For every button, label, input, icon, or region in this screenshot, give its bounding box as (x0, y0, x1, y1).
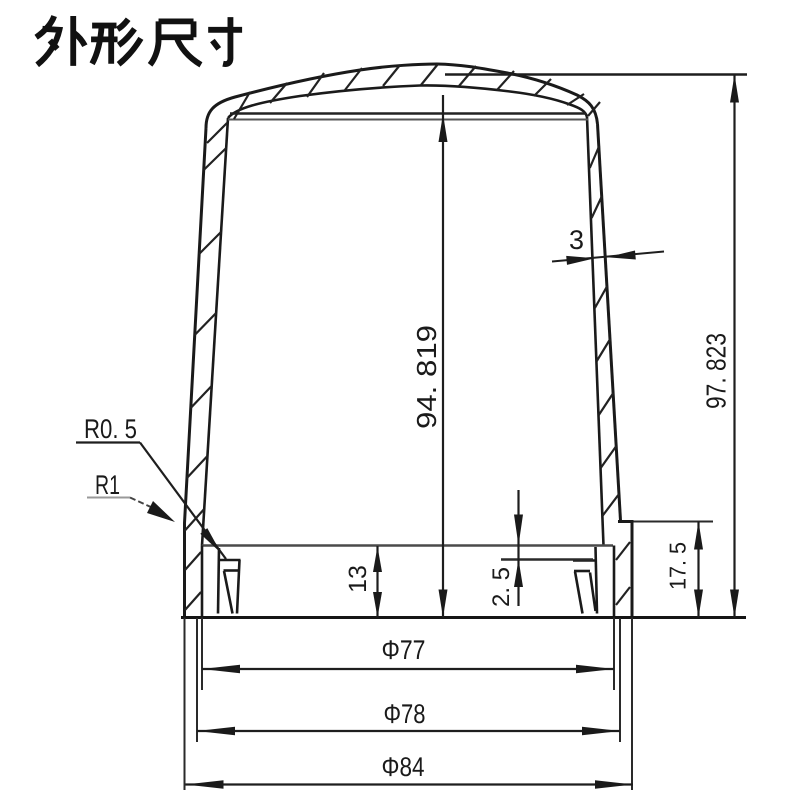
svg-text:2. 5: 2. 5 (488, 567, 515, 607)
svg-text:3: 3 (569, 225, 584, 255)
svg-text:Φ77: Φ77 (382, 635, 426, 665)
svg-text:Φ78: Φ78 (384, 699, 426, 729)
svg-text:Φ84: Φ84 (382, 752, 425, 782)
svg-text:97. 823: 97. 823 (701, 333, 732, 409)
svg-text:17. 5: 17. 5 (665, 542, 691, 590)
svg-text:94. 819: 94. 819 (411, 325, 442, 429)
svg-text:R1: R1 (95, 470, 120, 500)
svg-text:R0. 5: R0. 5 (84, 414, 137, 444)
svg-text:13: 13 (344, 565, 372, 593)
